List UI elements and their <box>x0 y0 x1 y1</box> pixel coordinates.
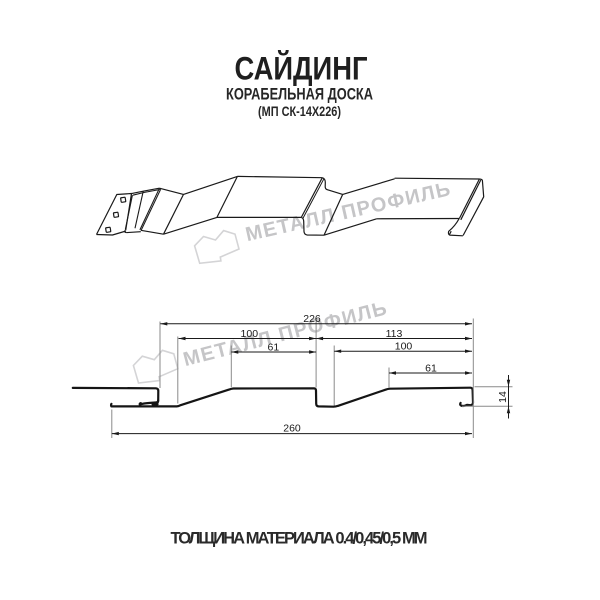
svg-text:САЙДИНГ: САЙДИНГ <box>235 49 368 87</box>
svg-text:61: 61 <box>425 363 437 375</box>
svg-text:100: 100 <box>395 341 413 353</box>
svg-text:КОРАБЕЛЬНАЯ ДОСКА: КОРАБЕЛЬНАЯ ДОСКА <box>226 85 373 104</box>
svg-text:МЕТАЛЛ ПРОФИЛЬ: МЕТАЛЛ ПРОФИЛЬ <box>244 178 453 246</box>
svg-text:113: 113 <box>386 328 403 340</box>
svg-text:МЕТАЛЛ ПРОФИЛЬ: МЕТАЛЛ ПРОФИЛЬ <box>181 298 389 372</box>
svg-text:100: 100 <box>241 328 259 340</box>
svg-text:226: 226 <box>303 313 321 325</box>
svg-text:260: 260 <box>283 423 301 435</box>
svg-text:14: 14 <box>497 391 509 403</box>
svg-text:(МП СК-14Х226): (МП СК-14Х226) <box>258 104 341 119</box>
svg-text:ТОЛЩИНА МАТЕРИАЛА 0.4/0,45/0,5: ТОЛЩИНА МАТЕРИАЛА 0.4/0,45/0,5 ММ <box>171 530 428 548</box>
svg-text:61: 61 <box>268 341 280 353</box>
